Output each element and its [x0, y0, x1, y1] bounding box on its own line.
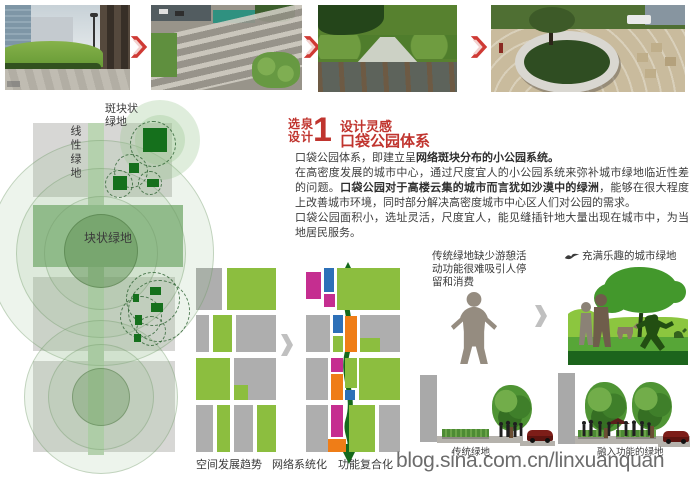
linear-green-label: 线性绿地	[68, 125, 81, 181]
grid-block	[328, 439, 346, 452]
car	[527, 430, 553, 441]
comparison-illustration: 传统绿地缺少游憩活动功能很难吸引人停留和消费 充满乐趣的城市绿地	[420, 245, 690, 370]
shrugging-person-silhouette	[450, 289, 498, 367]
photo-circular-planter-plaza	[491, 5, 685, 92]
grid-block	[345, 316, 357, 352]
pocket-park-patch	[151, 303, 163, 312]
gray-chevron-icon	[532, 303, 550, 329]
problem-caption-line: 传统绿地缺少游憩活	[432, 250, 527, 263]
photo-shrub-beds	[252, 52, 300, 88]
inner2-circle	[72, 368, 130, 426]
photo-stone-stools	[637, 53, 648, 62]
pocket-park-patch	[113, 176, 127, 190]
grid-block	[236, 315, 276, 352]
evolution-diagram: 空间发展趋势 网络系统化 功能复合化	[190, 260, 410, 475]
grid-block	[379, 405, 400, 452]
photo-pavement	[5, 69, 130, 90]
pocket-park-patch	[129, 163, 139, 173]
section-number: 1	[313, 111, 332, 150]
grid-block	[227, 268, 276, 310]
photo-green-slope	[151, 33, 177, 77]
problem-caption: 传统绿地缺少游憩活动功能很难吸引人停留和消费	[432, 250, 527, 289]
body-text-segment: 网络斑块分布的小公园系统。	[416, 152, 559, 164]
building-wall	[420, 375, 437, 442]
photo-person-red	[499, 43, 503, 53]
grid-block	[257, 405, 276, 452]
car-wheel	[530, 438, 535, 443]
photo-planter-ring	[515, 31, 619, 92]
body-paragraph: 口袋公园体系，即建立呈网络斑块分布的小公园系统。	[295, 151, 689, 166]
grid-block	[217, 405, 230, 452]
section-left-label: 传统绿地	[452, 444, 490, 458]
stamp-line2: 设计	[288, 130, 314, 144]
photo-planter-tree-canopy	[529, 7, 575, 33]
scene-figures	[568, 265, 688, 365]
photo-lamp-head	[90, 13, 98, 17]
grid-block	[349, 405, 375, 452]
grid-block	[306, 315, 330, 352]
evolution-label-2: 网络系统化	[272, 456, 327, 472]
bird-icon	[564, 252, 580, 261]
solution-caption: 充满乐趣的城市绿地	[582, 250, 677, 263]
roadway	[520, 441, 555, 446]
people-and-umbrella-figures	[578, 414, 658, 438]
body-text-segment: 口袋公园面积小，选址灵活，尺度宜人，能见缝插针地大量出现在城市中，为当地居民服务…	[295, 212, 689, 239]
green-space-structure-diagram: 斑块状 绿地 线性绿地 块状绿地	[0, 100, 200, 478]
pocket-park-patch	[147, 179, 159, 187]
photo-street-corner-lawn	[5, 5, 130, 90]
grid-block	[333, 315, 343, 333]
photo-car-dark	[175, 11, 184, 16]
grid-block	[324, 294, 335, 307]
car-wheel	[681, 439, 686, 444]
inner-circle	[64, 214, 138, 288]
patch-green-label-line1: 斑块状	[105, 103, 138, 115]
grid-block	[324, 268, 334, 292]
grid-block	[196, 405, 213, 452]
pocket-park-patch	[135, 315, 142, 325]
body-text-segment: 口袋公园体系，即建立呈	[295, 152, 416, 164]
grid-block	[331, 358, 343, 372]
grid-block	[306, 405, 328, 452]
grid-block	[306, 272, 321, 299]
photo-watermark-chip	[7, 81, 20, 87]
inspiration-title: 口袋公园体系	[340, 130, 430, 151]
grid-block	[345, 358, 357, 388]
pocket-park-patch	[150, 287, 161, 295]
problem-caption-line: 动功能很难吸引人停	[432, 263, 527, 276]
photo-park-path	[318, 5, 457, 92]
grid-block	[345, 390, 355, 400]
grid-block	[331, 405, 343, 437]
grid-block	[234, 405, 253, 452]
fun-green-space-scene	[568, 265, 688, 365]
gray-chevron-icon	[278, 332, 296, 358]
car-wheel	[545, 438, 550, 443]
pocket-park-patch	[133, 294, 139, 302]
body-text-segment: 口袋公园对于高楼云集的城市而言犹如沙漠中的绿洲	[340, 182, 599, 194]
car-wheel	[666, 439, 671, 444]
grid-block	[331, 374, 343, 400]
hedge-strip	[442, 429, 489, 439]
evolution-label-1: 空间发展趋势	[196, 456, 262, 472]
photo-plaza-aerial	[151, 5, 302, 90]
patch-green-label-line2: 绿地	[105, 116, 127, 128]
grid-block	[360, 338, 380, 352]
car	[663, 431, 689, 442]
block-green-label: 块状绿地	[84, 232, 132, 245]
body-paragraph: 在高密度发展的城市中心，通过尺度宜人的小公园系统来弥补城市绿地临近性差的问题。口…	[295, 166, 689, 211]
patch-green-label: 斑块状 绿地	[105, 103, 138, 129]
pocket-park-patch	[143, 128, 167, 152]
pedestrian-figures	[496, 420, 526, 438]
grid-block	[234, 385, 248, 400]
grid-block	[196, 315, 209, 352]
photo-car-white	[159, 9, 168, 14]
body-paragraph: 口袋公园面积小，选址灵活，尺度宜人，能见缝插针地大量出现在城市中，为当地居民服务…	[295, 211, 689, 241]
design-board: 斑块状 绿地 线性绿地 块状绿地 选泉 设计 1 设计灵感 口袋公园体系 口袋公…	[0, 0, 690, 478]
stamp-line1: 选泉	[288, 117, 314, 131]
red-arrow-icon	[469, 33, 489, 61]
grid-block	[196, 358, 230, 400]
body-text: 口袋公园体系，即建立呈网络斑块分布的小公园系统。在高密度发展的城市中心，通过尺度…	[295, 151, 689, 241]
red-arrow-icon	[129, 33, 149, 61]
pocket-park-patch	[134, 334, 141, 342]
photo-white-van	[627, 15, 651, 24]
grid-block	[306, 358, 328, 400]
section-right-label: 融入功能的绿地	[597, 444, 664, 458]
evolution-label-3: 功能复合化	[338, 456, 393, 472]
problem-caption-line: 留和消费	[432, 276, 527, 289]
grid-block	[213, 315, 232, 352]
photo-building	[645, 5, 685, 25]
grid-block	[337, 268, 400, 310]
grid-block	[333, 336, 343, 352]
photo-boardwalk	[318, 62, 457, 92]
grid-block	[359, 358, 400, 400]
building-wall	[558, 373, 575, 444]
xuanquan-design-stamp: 选泉 设计	[286, 118, 316, 144]
